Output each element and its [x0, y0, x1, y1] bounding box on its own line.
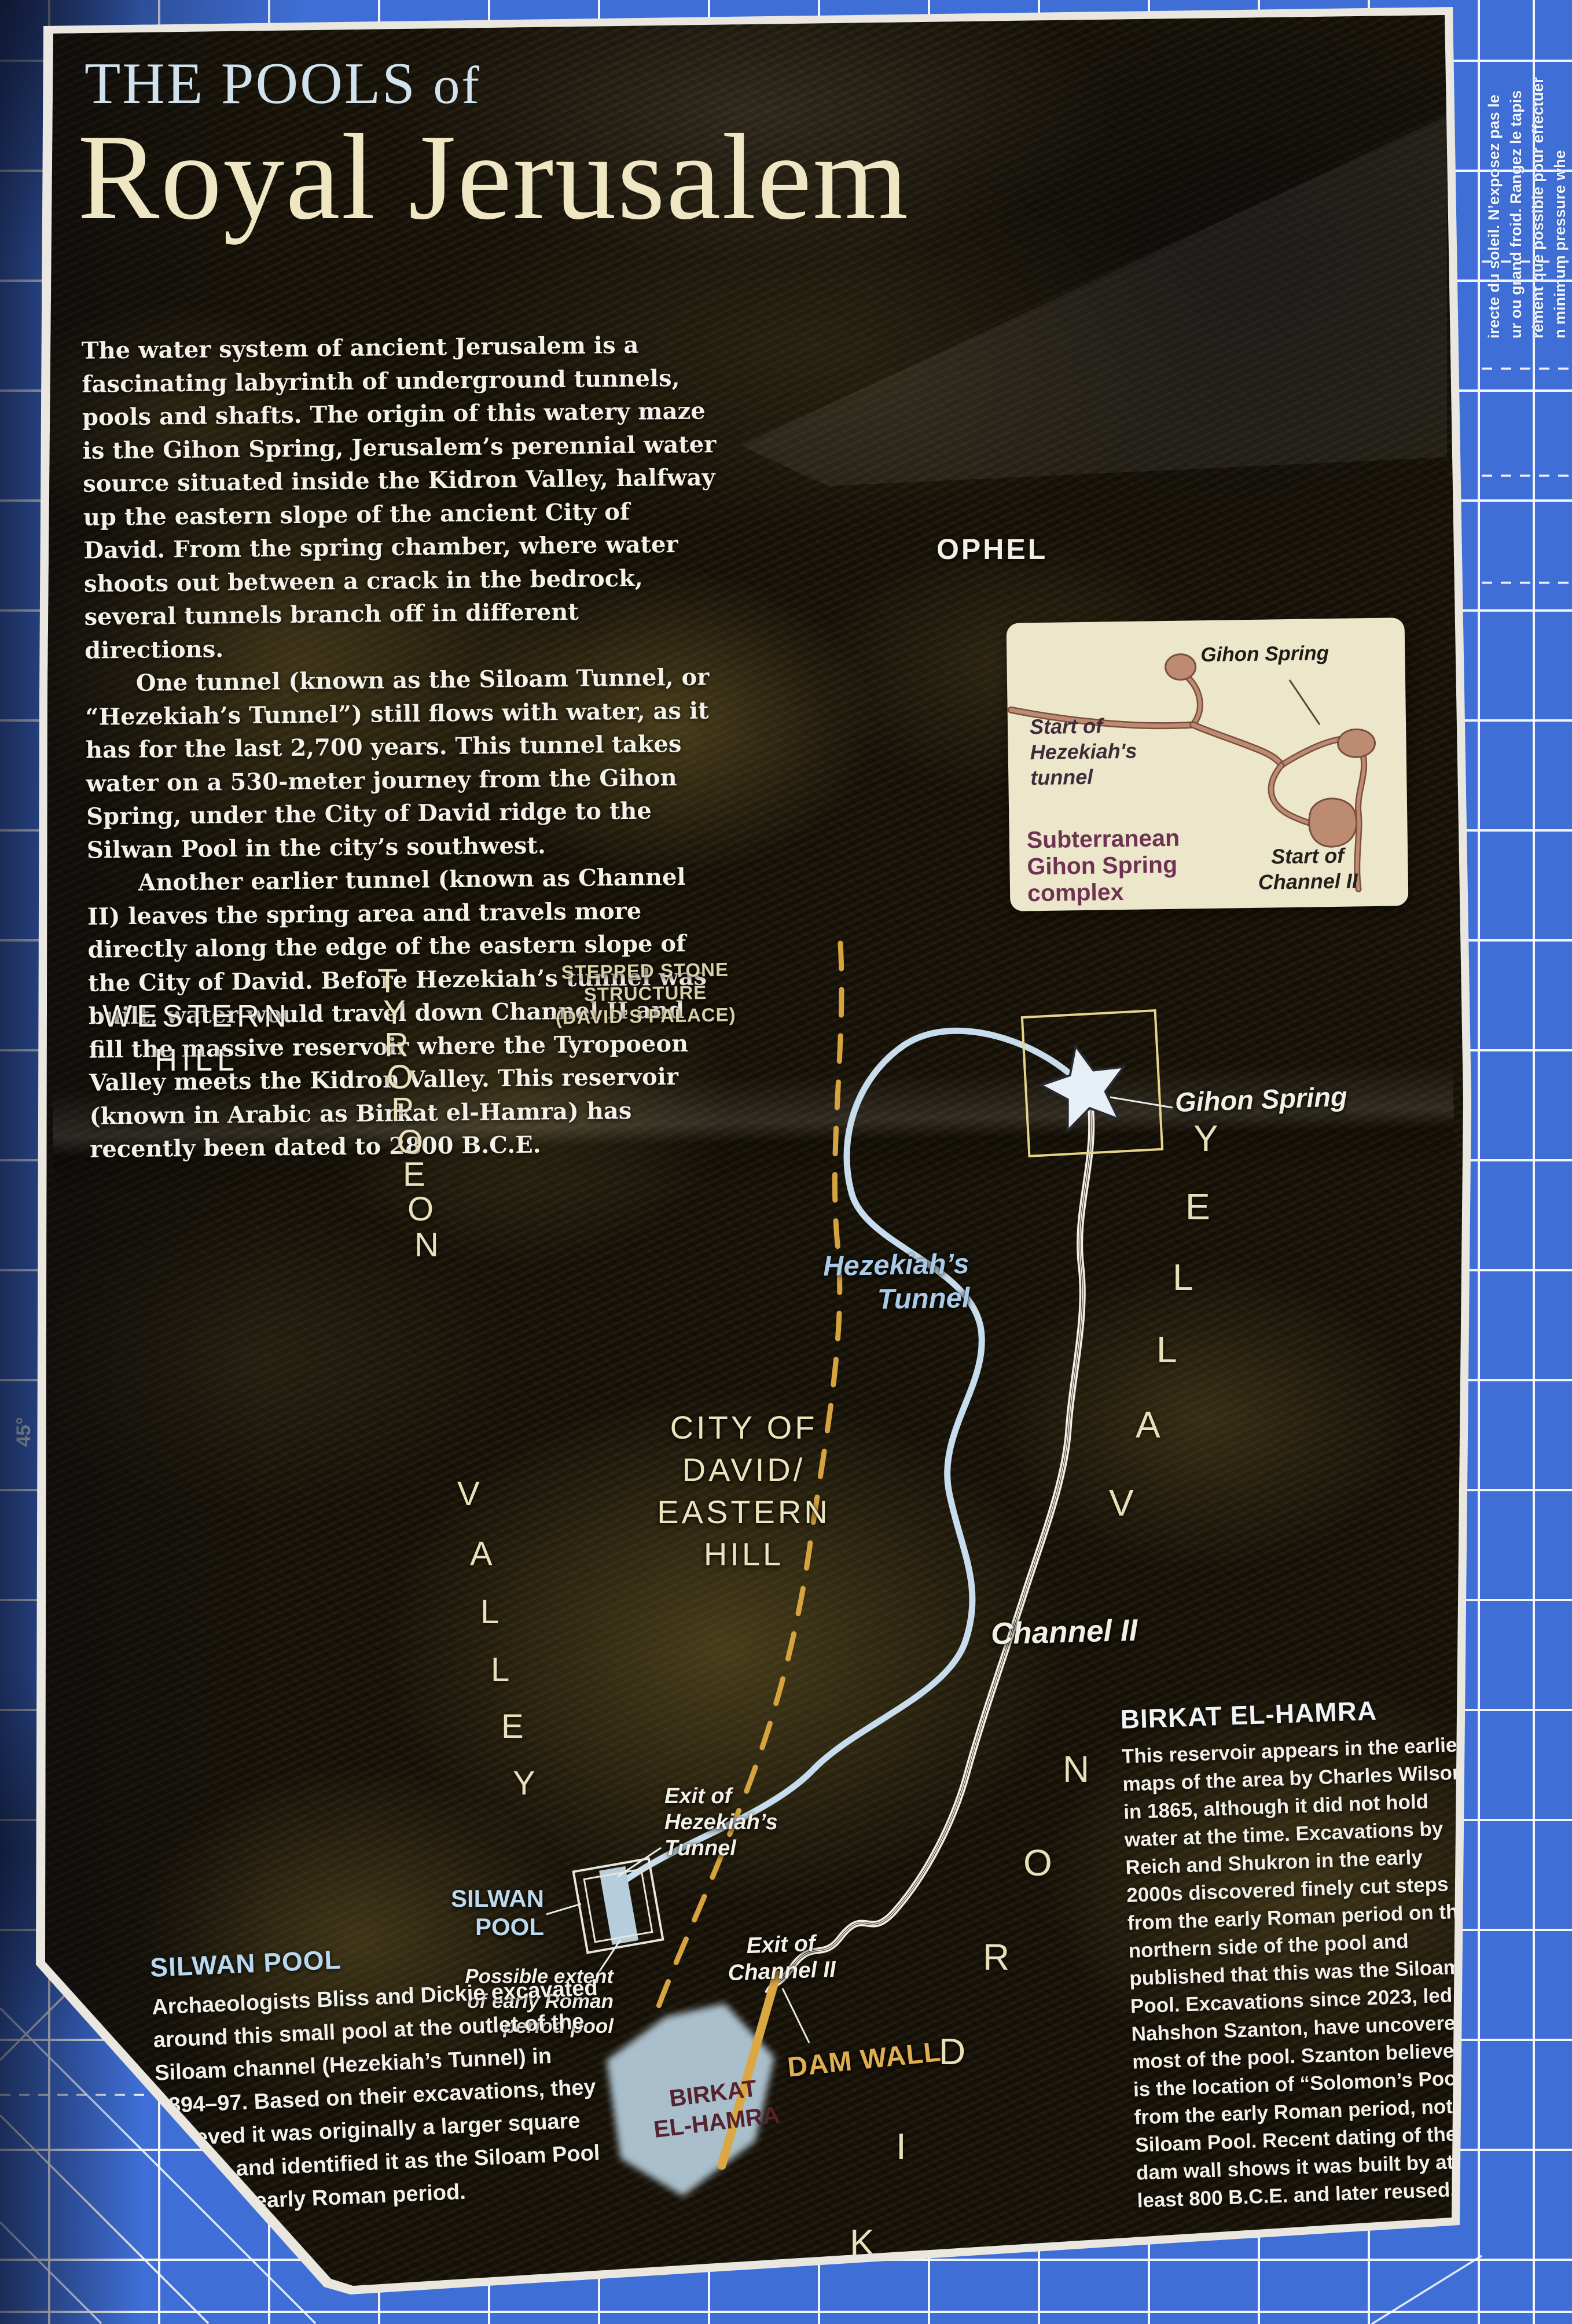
page-title-line1: THE POOLS of	[85, 50, 481, 117]
map-label-western-hill: WESTERNHILL	[98, 994, 295, 1082]
valley-letter: N	[414, 1226, 439, 1264]
valley-letter: A	[470, 1535, 493, 1573]
gihon-spring-star	[1034, 1037, 1134, 1134]
mat-edge-instructions: irecte du soleil. N’exposez pas le ur ou…	[1483, 9, 1571, 339]
intro-paragraph-1: The water system of ancient Jerusalem is…	[82, 328, 719, 667]
valley-letter: A	[1136, 1403, 1160, 1446]
valley-letter: O	[407, 1190, 434, 1229]
inset-label-gihon-spring: Gihon Spring	[1200, 642, 1329, 667]
valley-letter: E	[501, 1707, 524, 1746]
sidebar-birkat-body: This reservoir appears in the earliest m…	[1121, 1730, 1496, 2215]
title-the-pools: THE POOLS	[85, 51, 417, 116]
valley-letter: V	[457, 1474, 480, 1513]
map-label-gihon-spring: Gihon Spring	[1174, 1080, 1347, 1118]
valley-letter: D	[939, 2030, 965, 2073]
page-title-line2: Royal Jerusalem	[78, 115, 909, 239]
valley-letter: L	[480, 1593, 499, 1631]
title-of: of	[433, 56, 481, 115]
valley-letter: V	[1109, 1481, 1134, 1524]
valley-letter: Y	[1193, 1117, 1218, 1160]
valley-letter: R	[983, 1936, 1009, 1979]
map-label-ophel: OPHEL	[936, 532, 1048, 566]
mat-instruction-line: n minimum pressure whe	[1549, 9, 1571, 339]
map-label-stepped-stone-structure: STEPPED STONESTRUCTURE(DAVID’S PALACE)	[538, 958, 753, 1029]
map-label-city-of-david: CITY OFDAVID/EASTERNHILL	[614, 1406, 874, 1575]
valley-letter: I	[896, 2125, 906, 2168]
inset-gihon-spring-complex: Gihon Spring Start ofHezekiah'stunnel Su…	[1007, 617, 1409, 911]
inset-label-start-hezekiah: Start ofHezekiah'stunnel	[1030, 713, 1137, 791]
valley-letter: L	[1156, 1328, 1177, 1371]
inset-heading-subterranean-complex: SubterraneanGihon Springcomplex	[1026, 825, 1180, 907]
inset-label-start-channel-ii: Start ofChannel II	[1241, 843, 1375, 895]
map-label-silwan-pool: SILWANPOOL	[428, 1884, 544, 1941]
mat-instruction-line: rément que possible pour effectuer	[1527, 9, 1549, 339]
valley-letter: E	[403, 1155, 425, 1194]
map-label-exit-hezekiah: Exit ofHezekiah’sTunnel	[664, 1784, 778, 1862]
mat-instruction-line: ur ou grand froid. Rangez le tapis	[1505, 9, 1527, 339]
inset-pointer-line	[1290, 679, 1320, 725]
valley-letter: L	[491, 1650, 509, 1689]
mat-angle-label: 45°	[13, 1417, 35, 1447]
sidebar-birkat-el-hamra: BIRKAT EL-HAMRA This reservoir appears i…	[1120, 1691, 1496, 2215]
map-label-channel-ii: Channel II	[990, 1613, 1138, 1652]
mat-instruction-line: irecte du soleil. N’exposez pas le	[1483, 9, 1505, 339]
valley-letter: Y	[513, 1764, 535, 1803]
photo-of-map-spread-on-cutting-mat: irecte du soleil. N’exposez pas le ur ou…	[0, 0, 1572, 2324]
valley-letter: E	[1185, 1185, 1210, 1228]
valley-letter: L	[1173, 1256, 1193, 1299]
valley-letter: N	[1063, 1748, 1089, 1790]
valley-letter: O	[1023, 1841, 1052, 1884]
map-label-exit-channel-ii: Exit ofChannel II	[717, 1929, 846, 1987]
intro-paragraph-2: One tunnel (known as the Siloam Tunnel, …	[85, 660, 721, 866]
map-label-hezekiahs-tunnel: Hezekiah’sTunnel	[769, 1247, 970, 1319]
